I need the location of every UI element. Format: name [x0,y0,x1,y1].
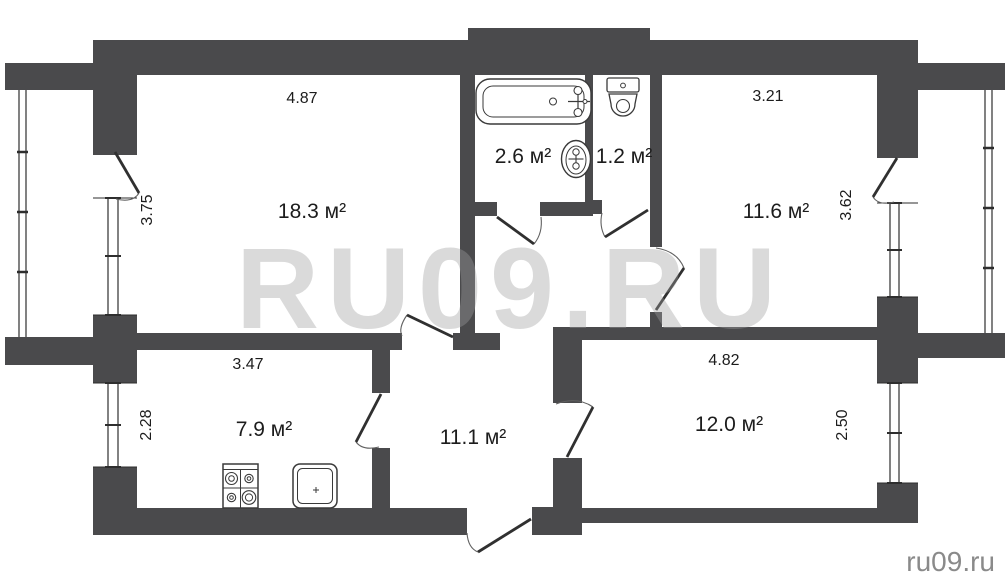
door-swing-arc [467,533,478,552]
dim-2-50-label: 2.50 [834,409,851,440]
wall-right-corner-column [877,40,918,158]
toilet-tank [607,78,639,92]
toilet-icon [607,78,639,116]
dim-3-62-label: 3.62 [838,189,855,220]
wall-top-wall [93,40,918,75]
door-swing-arc [873,197,894,203]
bathroom-area-label: 2.6 м² [495,145,551,168]
faucet-knob [574,109,582,117]
site-credit-text: ru09.ru [906,546,995,577]
wall-balcony-left-bottom [5,337,95,365]
living-balcony-door-icon [115,152,139,200]
faucet-tip [583,100,587,104]
door-leaf [567,407,593,457]
wall-entrance-jamb [532,507,582,535]
entrance-door-icon [467,519,531,552]
wall-balcony-right-top [918,63,1005,90]
kitchen-sink-outer [293,464,337,508]
bedroom-balcony-door-icon [873,158,897,203]
kitchen-door-icon [356,394,381,448]
wall-balcony-right-bottom [918,333,1005,358]
door-swing-arc [356,442,379,448]
wall-bottom-wall-left [93,508,467,535]
hallway-area-label: 11.1 м² [440,426,507,449]
wall-room12-right-wall-lower [877,483,918,523]
room12-door-icon [556,401,593,457]
wall-bottom-wall-right [582,508,918,523]
kitchen-area-label: 7.9 м² [236,418,292,441]
sink-faucet-knob [573,149,579,155]
door-leaf [115,152,139,193]
wall-room12-left-wall-lower [553,458,582,508]
door-leaf [478,519,531,552]
wall-wc-door-jamb-left [593,200,602,214]
room12-area-label: 12.0 м² [695,413,763,436]
dim-3-47-label: 3.47 [232,356,263,373]
balcony-right-glazing-icon [983,90,994,333]
wall-kitchen-right-wall-upper [372,350,390,393]
sink-faucet-knob [573,163,579,169]
wall-balcony-left-top [5,63,95,90]
bedroom-area-label: 11.6 м² [743,200,810,223]
balcony-left-glazing-icon [17,90,28,337]
floor-plan: 18.3 м²2.6 м²1.2 м²11.6 м²7.9 м²11.1 м²1… [0,0,1007,587]
wall-bath-door-jamb-left [475,202,497,216]
dim-4-87-label: 4.87 [286,90,317,107]
wall-left-wall-seg [93,367,137,383]
wall-top-wall-step [468,28,650,44]
door-leaf [356,394,381,442]
floor-plan-page: 18.3 м²2.6 м²1.2 м²11.6 м²7.9 м²11.1 м²1… [0,0,1007,587]
faucet-knob [574,87,582,95]
dim-2-28-label: 2.28 [138,409,155,440]
dim-3-21-label: 3.21 [752,88,783,105]
watermark-text: RU09.RU [236,225,784,353]
room12-window-icon [877,383,918,483]
kitchen-window-icon [93,383,137,467]
bathtub-icon [476,79,591,124]
wall-bath-door-jamb-right [540,202,593,216]
stove-icon [223,464,258,508]
living-room-area-label: 18.3 м² [278,200,346,223]
wc-area-label: 1.2 м² [596,145,652,168]
bathroom-sink-icon [562,141,591,178]
dim-4-82-label: 4.82 [708,352,739,369]
wall-kitchen-right-wall-lower [372,448,390,508]
wall-room12-right-wall-upper [877,340,918,383]
kitchen-sink-icon [293,464,337,508]
living-window-icon [93,198,137,315]
door-leaf [873,158,897,197]
bedroom-window-icon [877,203,918,297]
dim-3-75-label: 3.75 [139,194,156,225]
wall-left-corner-column [93,40,137,155]
